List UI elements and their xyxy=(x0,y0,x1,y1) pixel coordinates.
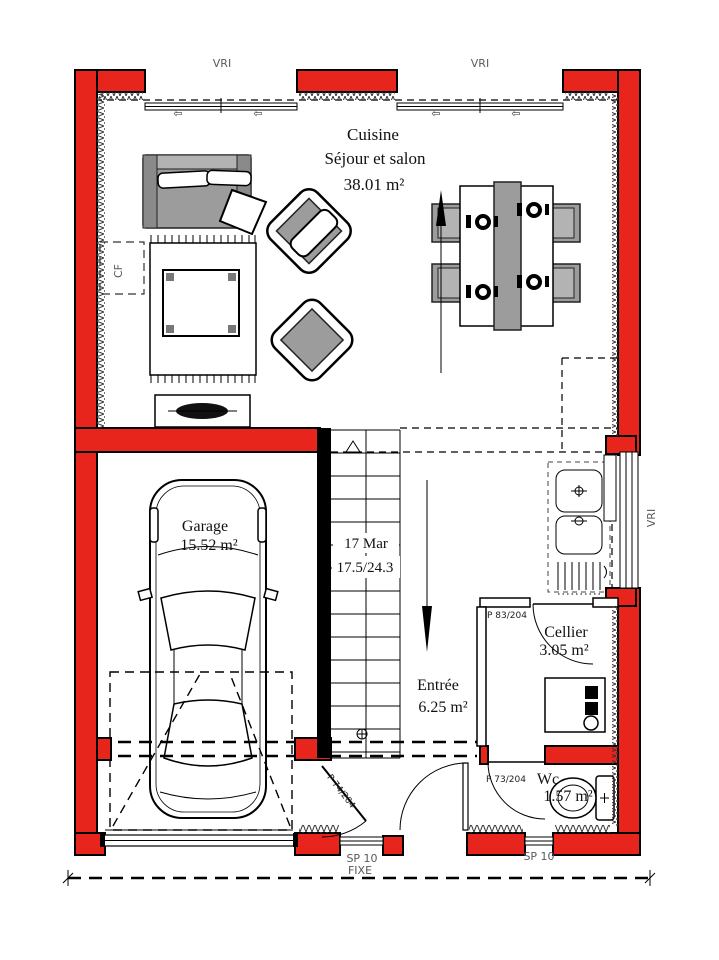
wc-name: Wc xyxy=(537,771,559,788)
car-mirror-right xyxy=(264,589,278,601)
water-heater-switch-2 xyxy=(585,702,598,715)
hatch-top-2 xyxy=(299,92,395,100)
stairs-steps-note: 17 Mar xyxy=(344,536,388,552)
vri-label-top-left: VRI xyxy=(213,57,231,70)
garage-door-post-left xyxy=(100,833,105,847)
car-wheel-left xyxy=(150,508,158,542)
hatch-top-1 xyxy=(99,92,143,100)
wall-right-upper xyxy=(618,70,640,455)
coffee-table-leg xyxy=(166,325,174,333)
hatch-top-3 xyxy=(565,92,610,100)
wall-right-lower xyxy=(618,588,640,855)
fixe-label: FIXE xyxy=(348,864,372,877)
water-heater-dial xyxy=(584,716,598,730)
vri-label-top-right: VRI xyxy=(471,57,489,70)
wc-door-label: P 73/204 xyxy=(486,775,526,785)
cf-label: CF xyxy=(112,264,125,278)
front-door xyxy=(400,763,468,830)
water-heater xyxy=(545,678,605,732)
main-room-name-1: Cuisine xyxy=(347,125,399,144)
wall-top-center xyxy=(297,70,397,92)
window-open-arrow: ⇦ xyxy=(511,107,520,120)
sofa-cushion-1 xyxy=(158,171,211,189)
cellier-name: Cellier xyxy=(544,624,588,641)
drainer-lines xyxy=(558,562,600,590)
wall-stairs xyxy=(317,428,331,758)
window-open-arrow: ⇦ xyxy=(431,107,440,120)
main-room-area: 38.01 m² xyxy=(344,175,405,194)
rug-fringe-top xyxy=(151,235,255,243)
floor-plan-page: Cuisine Séjour et salon 38.01 m² Garage … xyxy=(0,0,719,960)
partition-entree-cellier xyxy=(477,607,486,746)
vri-label-right: VRI xyxy=(645,509,658,527)
armchair-2 xyxy=(267,295,358,386)
wc-area: 1.57 m² xyxy=(543,788,592,805)
faucet-cross-1 xyxy=(571,485,587,497)
garage-sectional-door xyxy=(100,830,298,847)
front-door-leaf xyxy=(463,763,468,830)
cellier-area: 3.05 m² xyxy=(539,642,588,659)
rug-fringe-bottom xyxy=(151,375,255,383)
coffee-table xyxy=(163,270,239,336)
sofa-arm-left xyxy=(143,155,157,228)
cellier-door-label: P 83/204 xyxy=(487,611,527,621)
main-room-name-2: Séjour et salon xyxy=(324,149,426,168)
hatch-bottom-2 xyxy=(469,825,523,833)
wall-bottom-stub xyxy=(383,836,403,855)
sofa-back xyxy=(143,155,251,169)
garage-door-label: P 74/204 xyxy=(324,773,357,811)
dimension-arrows xyxy=(422,190,446,652)
tv-unit xyxy=(155,395,250,427)
hatch-left xyxy=(97,94,105,428)
coffee-table-top xyxy=(163,270,239,336)
partition-cellier-top-right xyxy=(593,598,618,607)
kitchen-counter xyxy=(548,462,610,594)
table-runner xyxy=(494,182,521,330)
staircase xyxy=(331,430,400,758)
wall-bottom-2 xyxy=(467,833,525,855)
wall-wc-right xyxy=(545,746,618,764)
bay-sliding-leaf xyxy=(604,455,616,521)
garage-door-post-right xyxy=(293,833,298,847)
front-door-swing xyxy=(400,763,467,830)
arrow-head-down xyxy=(422,606,432,652)
entree-area: 6.25 m² xyxy=(418,699,467,716)
dining-set xyxy=(432,182,580,330)
sink-basin-2 xyxy=(556,516,602,554)
sp10-right-label: SP 10 xyxy=(523,850,554,863)
garage-name: Garage xyxy=(182,518,228,535)
sofa xyxy=(143,155,266,234)
coffee-table-leg xyxy=(228,325,236,333)
wall-wc-left xyxy=(480,746,488,764)
window-open-arrow: ⇦ xyxy=(173,107,182,120)
hatch-bottom-1 xyxy=(299,825,339,833)
bay-window-right xyxy=(620,452,638,588)
water-heater-switch-1 xyxy=(585,686,598,699)
partition-cellier-top-left xyxy=(480,598,530,607)
stairs-direction-mark xyxy=(346,441,360,452)
armchair-1 xyxy=(262,184,355,277)
coffee-table-leg xyxy=(228,273,236,281)
hatch-right-1 xyxy=(612,94,618,436)
hatch-bottom-3 xyxy=(555,825,610,833)
window-open-arrow: ⇦ xyxy=(253,107,262,120)
entree-name: Entrée xyxy=(417,677,459,694)
stairs-dims-note: 17.5/24.3 xyxy=(337,560,394,576)
wall-bottom-right xyxy=(553,833,640,855)
garage-area: 15.52 m² xyxy=(180,537,237,554)
car-mirror-left xyxy=(138,589,152,601)
floor-plan-drawing: Cuisine Séjour et salon 38.01 m² Garage … xyxy=(0,0,719,960)
wall-left xyxy=(75,70,97,855)
bay-jamb-top xyxy=(606,436,636,454)
car-wheel-right xyxy=(258,508,266,542)
coffee-table-leg xyxy=(166,273,174,281)
wall-stub-left xyxy=(97,738,111,760)
wall-garage-living xyxy=(75,428,320,452)
sofa-cushion-2 xyxy=(207,170,251,186)
sink-arrow-2 xyxy=(604,566,607,578)
hatch-right-2 xyxy=(612,606,618,826)
